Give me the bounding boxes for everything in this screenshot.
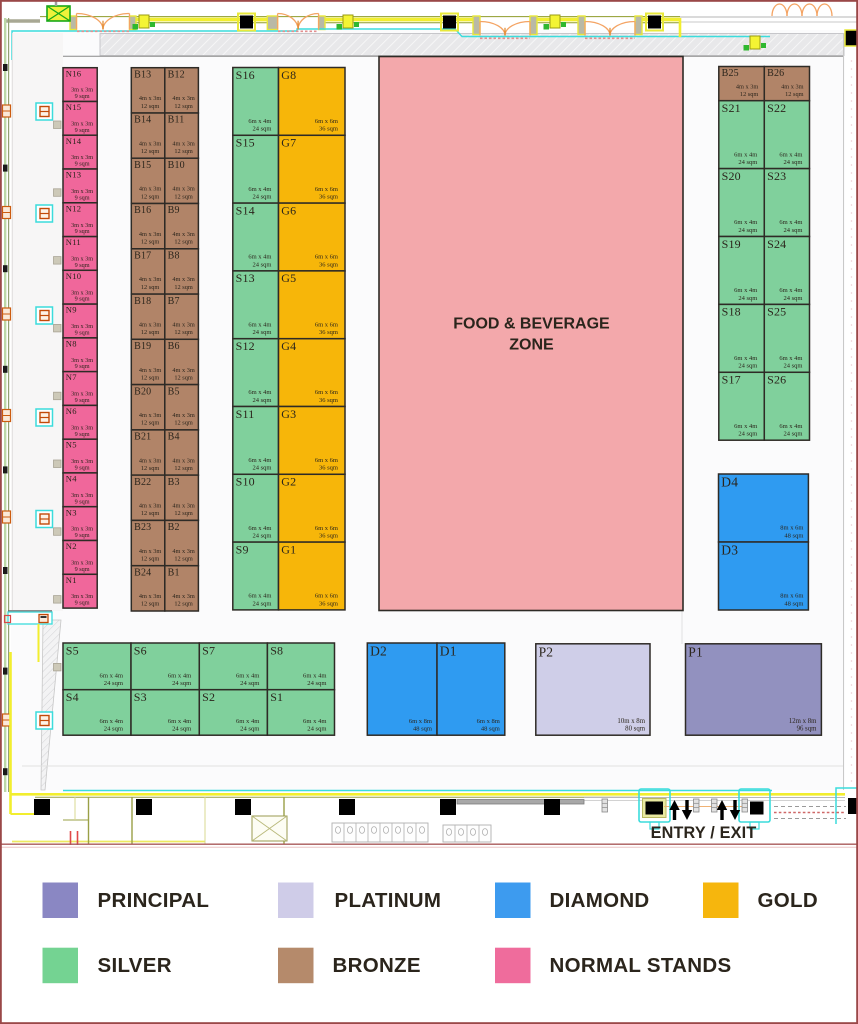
- svg-text:24 sqm: 24 sqm: [784, 159, 803, 166]
- svg-text:24 sqm: 24 sqm: [307, 726, 327, 733]
- svg-text:B21: B21: [134, 432, 151, 443]
- svg-text:6m x 4m: 6m x 4m: [779, 151, 802, 158]
- svg-text:N13: N13: [66, 170, 81, 180]
- svg-text:9 sqm: 9 sqm: [75, 194, 90, 201]
- svg-text:9 sqm: 9 sqm: [75, 161, 90, 168]
- svg-text:S18: S18: [722, 305, 741, 319]
- svg-text:N6: N6: [66, 406, 77, 416]
- svg-text:4m x 3m: 4m x 3m: [172, 412, 194, 419]
- svg-text:4m x 3m: 4m x 3m: [139, 140, 161, 147]
- svg-text:6m x 6m: 6m x 6m: [315, 525, 338, 532]
- svg-text:9 sqm: 9 sqm: [75, 600, 90, 607]
- svg-text:S23: S23: [767, 169, 786, 183]
- svg-text:G6: G6: [281, 203, 296, 217]
- svg-text:24 sqm: 24 sqm: [738, 295, 757, 302]
- svg-text:N7: N7: [66, 372, 77, 382]
- svg-text:S8: S8: [270, 643, 283, 657]
- svg-text:9 sqm: 9 sqm: [75, 465, 90, 472]
- svg-text:24 sqm: 24 sqm: [784, 431, 803, 438]
- svg-text:N2: N2: [66, 541, 77, 551]
- svg-text:24 sqm: 24 sqm: [172, 680, 192, 687]
- svg-text:12 sqm: 12 sqm: [141, 420, 159, 427]
- svg-text:6m x 4m: 6m x 4m: [100, 672, 124, 679]
- svg-text:4m x 3m: 4m x 3m: [172, 548, 194, 555]
- svg-text:4m x 3m: 4m x 3m: [139, 95, 161, 102]
- svg-text:4m x 3m: 4m x 3m: [172, 503, 194, 510]
- svg-text:12 sqm: 12 sqm: [141, 103, 159, 110]
- svg-text:36 sqm: 36 sqm: [319, 261, 338, 268]
- svg-text:S1: S1: [270, 690, 283, 704]
- svg-text:6m x 6m: 6m x 6m: [315, 186, 338, 193]
- svg-text:N1: N1: [66, 575, 77, 585]
- svg-text:24 sqm: 24 sqm: [253, 194, 272, 201]
- svg-text:12 sqm: 12 sqm: [141, 465, 159, 472]
- svg-text:S9: S9: [236, 542, 249, 556]
- svg-text:N10: N10: [66, 271, 81, 281]
- svg-text:4m x 3m: 4m x 3m: [139, 186, 161, 193]
- svg-text:6m x 4m: 6m x 4m: [734, 287, 757, 294]
- svg-text:B10: B10: [168, 160, 185, 171]
- svg-text:6m x 4m: 6m x 4m: [168, 672, 192, 679]
- svg-text:48 sqm: 48 sqm: [784, 532, 803, 539]
- svg-text:9 sqm: 9 sqm: [75, 296, 90, 303]
- svg-text:N5: N5: [66, 440, 77, 450]
- svg-text:S2: S2: [202, 690, 215, 704]
- svg-text:24 sqm: 24 sqm: [253, 126, 272, 133]
- svg-text:9 sqm: 9 sqm: [75, 397, 90, 404]
- svg-text:12m x 8m: 12m x 8m: [789, 718, 817, 725]
- svg-text:B2: B2: [168, 522, 180, 533]
- svg-text:6m x 4m: 6m x 4m: [248, 389, 271, 396]
- svg-text:B20: B20: [134, 386, 151, 397]
- svg-text:S10: S10: [236, 475, 255, 489]
- svg-text:6m x 4m: 6m x 4m: [734, 355, 757, 362]
- svg-text:4m x 3m: 4m x 3m: [172, 231, 194, 238]
- svg-text:NORMAL STANDS: NORMAL STANDS: [550, 954, 732, 977]
- svg-text:N8: N8: [66, 338, 77, 348]
- svg-text:G3: G3: [281, 407, 296, 421]
- svg-text:9 sqm: 9 sqm: [75, 228, 90, 235]
- svg-text:B26: B26: [767, 68, 784, 79]
- svg-text:B15: B15: [134, 160, 151, 171]
- svg-text:36 sqm: 36 sqm: [319, 329, 338, 336]
- svg-text:4m x 3m: 4m x 3m: [172, 457, 194, 464]
- svg-text:12 sqm: 12 sqm: [174, 556, 192, 563]
- svg-text:9 sqm: 9 sqm: [75, 532, 90, 539]
- svg-text:9 sqm: 9 sqm: [75, 498, 90, 505]
- svg-text:S21: S21: [722, 101, 741, 115]
- svg-text:6m x 4m: 6m x 4m: [248, 254, 271, 261]
- svg-text:6m x 4m: 6m x 4m: [168, 718, 192, 725]
- svg-text:6m x 4m: 6m x 4m: [303, 718, 327, 725]
- svg-text:P2: P2: [539, 644, 554, 659]
- svg-text:6m x 6m: 6m x 6m: [315, 593, 338, 600]
- svg-text:PLATINUM: PLATINUM: [335, 889, 442, 912]
- svg-text:B9: B9: [168, 205, 180, 216]
- svg-text:B6: B6: [168, 341, 180, 352]
- svg-text:G4: G4: [281, 339, 296, 353]
- svg-text:80 sqm: 80 sqm: [625, 726, 646, 733]
- svg-text:48 sqm: 48 sqm: [784, 600, 803, 607]
- svg-text:G5: G5: [281, 271, 296, 285]
- svg-text:12 sqm: 12 sqm: [174, 103, 192, 110]
- svg-text:12 sqm: 12 sqm: [174, 148, 192, 155]
- svg-text:24 sqm: 24 sqm: [253, 533, 272, 540]
- svg-text:B12: B12: [168, 69, 185, 80]
- svg-text:4m x 3m: 4m x 3m: [172, 140, 194, 147]
- svg-text:8m x 6m: 8m x 6m: [780, 593, 803, 600]
- svg-text:4m x 3m: 4m x 3m: [139, 457, 161, 464]
- svg-text:36 sqm: 36 sqm: [319, 600, 338, 607]
- svg-text:9 sqm: 9 sqm: [75, 330, 90, 337]
- svg-text:24 sqm: 24 sqm: [104, 680, 124, 687]
- svg-text:D3: D3: [721, 543, 738, 558]
- svg-text:N3: N3: [66, 507, 77, 517]
- svg-text:12 sqm: 12 sqm: [174, 239, 192, 246]
- svg-text:6m x 4m: 6m x 4m: [236, 718, 260, 725]
- svg-text:9 sqm: 9 sqm: [75, 431, 90, 438]
- svg-text:S12: S12: [236, 339, 255, 353]
- svg-text:24 sqm: 24 sqm: [253, 329, 272, 336]
- svg-text:S17: S17: [722, 373, 741, 387]
- svg-text:12 sqm: 12 sqm: [174, 329, 192, 336]
- svg-text:N11: N11: [66, 237, 81, 247]
- svg-text:S7: S7: [202, 643, 215, 657]
- svg-text:G7: G7: [281, 136, 296, 150]
- svg-text:12 sqm: 12 sqm: [141, 601, 159, 608]
- svg-text:12 sqm: 12 sqm: [141, 148, 159, 155]
- svg-text:4m x 3m: 4m x 3m: [172, 186, 194, 193]
- svg-text:12 sqm: 12 sqm: [174, 601, 192, 608]
- svg-text:4m x 3m: 4m x 3m: [172, 593, 194, 600]
- svg-text:B7: B7: [168, 296, 180, 307]
- svg-text:B16: B16: [134, 205, 151, 216]
- svg-text:6m x 4m: 6m x 4m: [779, 423, 802, 430]
- svg-text:12 sqm: 12 sqm: [174, 193, 192, 200]
- svg-text:S16: S16: [236, 68, 255, 82]
- svg-text:96 sqm: 96 sqm: [797, 726, 818, 733]
- svg-text:24 sqm: 24 sqm: [240, 680, 260, 687]
- svg-text:S6: S6: [134, 643, 147, 657]
- svg-text:N4: N4: [66, 474, 77, 484]
- svg-text:24 sqm: 24 sqm: [307, 680, 327, 687]
- svg-text:36 sqm: 36 sqm: [319, 533, 338, 540]
- svg-text:24 sqm: 24 sqm: [253, 397, 272, 404]
- svg-text:B11: B11: [168, 115, 185, 126]
- svg-text:B24: B24: [134, 567, 151, 578]
- svg-text:B17: B17: [134, 251, 151, 262]
- svg-text:ZONE: ZONE: [509, 337, 554, 354]
- svg-text:6m x 6m: 6m x 6m: [315, 457, 338, 464]
- svg-text:48 sqm: 48 sqm: [413, 726, 432, 733]
- svg-text:6m x 6m: 6m x 6m: [315, 321, 338, 328]
- svg-text:12 sqm: 12 sqm: [740, 91, 758, 98]
- svg-text:6m x 4m: 6m x 4m: [248, 457, 271, 464]
- svg-text:24 sqm: 24 sqm: [253, 600, 272, 607]
- svg-text:24 sqm: 24 sqm: [240, 726, 260, 733]
- svg-text:12 sqm: 12 sqm: [141, 329, 159, 336]
- svg-text:4m x 3m: 4m x 3m: [172, 322, 194, 329]
- svg-text:6m x 4m: 6m x 4m: [248, 525, 271, 532]
- svg-text:4m x 3m: 4m x 3m: [781, 83, 803, 90]
- svg-text:B1: B1: [168, 567, 180, 578]
- svg-text:S13: S13: [236, 271, 255, 285]
- svg-text:S19: S19: [722, 237, 741, 251]
- svg-text:24 sqm: 24 sqm: [253, 261, 272, 268]
- svg-text:4m x 3m: 4m x 3m: [139, 503, 161, 510]
- svg-text:12 sqm: 12 sqm: [174, 374, 192, 381]
- svg-text:S24: S24: [767, 237, 786, 251]
- svg-text:6m x 4m: 6m x 4m: [303, 672, 327, 679]
- svg-text:6m x 4m: 6m x 4m: [734, 219, 757, 226]
- svg-text:BRONZE: BRONZE: [333, 954, 421, 977]
- svg-text:8m x 6m: 8m x 6m: [780, 525, 803, 532]
- svg-text:N14: N14: [66, 136, 82, 146]
- svg-text:6m x 6m: 6m x 6m: [315, 118, 338, 125]
- svg-text:FOOD & BEVERAGE: FOOD & BEVERAGE: [453, 316, 610, 333]
- svg-text:S3: S3: [134, 690, 147, 704]
- svg-text:4m x 3m: 4m x 3m: [139, 593, 161, 600]
- svg-text:S25: S25: [767, 305, 786, 319]
- svg-text:G2: G2: [281, 475, 296, 489]
- svg-text:B22: B22: [134, 477, 151, 488]
- svg-text:D1: D1: [440, 644, 457, 659]
- svg-text:24 sqm: 24 sqm: [784, 227, 803, 234]
- svg-text:B8: B8: [168, 251, 180, 262]
- svg-text:B25: B25: [722, 68, 739, 79]
- svg-text:24 sqm: 24 sqm: [738, 159, 757, 166]
- svg-text:N12: N12: [66, 203, 81, 213]
- svg-text:4m x 3m: 4m x 3m: [736, 83, 758, 90]
- svg-text:6m x 4m: 6m x 4m: [734, 151, 757, 158]
- svg-text:N9: N9: [66, 305, 77, 315]
- svg-text:12 sqm: 12 sqm: [141, 239, 159, 246]
- svg-text:ENTRY / EXIT: ENTRY / EXIT: [651, 824, 757, 842]
- svg-text:12 sqm: 12 sqm: [174, 420, 192, 427]
- svg-text:24 sqm: 24 sqm: [784, 363, 803, 370]
- svg-text:6m x 4m: 6m x 4m: [100, 718, 124, 725]
- svg-text:6m x 4m: 6m x 4m: [779, 355, 802, 362]
- svg-text:12 sqm: 12 sqm: [141, 284, 159, 291]
- svg-text:N15: N15: [66, 102, 81, 112]
- svg-text:4m x 3m: 4m x 3m: [139, 548, 161, 555]
- svg-text:B18: B18: [134, 296, 151, 307]
- svg-text:24 sqm: 24 sqm: [172, 726, 192, 733]
- svg-text:6m x 4m: 6m x 4m: [248, 118, 271, 125]
- svg-text:10m x 8m: 10m x 8m: [617, 718, 645, 725]
- svg-text:4m x 3m: 4m x 3m: [139, 231, 161, 238]
- svg-text:6m x 8m: 6m x 8m: [477, 718, 500, 725]
- svg-text:36 sqm: 36 sqm: [319, 397, 338, 404]
- svg-text:S5: S5: [66, 643, 79, 657]
- svg-text:B14: B14: [134, 115, 151, 126]
- svg-text:S26: S26: [767, 373, 786, 387]
- svg-text:4m x 3m: 4m x 3m: [139, 412, 161, 419]
- svg-text:12 sqm: 12 sqm: [141, 374, 159, 381]
- svg-text:12 sqm: 12 sqm: [174, 465, 192, 472]
- svg-text:12 sqm: 12 sqm: [141, 510, 159, 517]
- svg-text:4m x 3m: 4m x 3m: [172, 95, 194, 102]
- svg-text:6m x 6m: 6m x 6m: [315, 254, 338, 261]
- svg-text:S22: S22: [767, 101, 786, 115]
- svg-text:36 sqm: 36 sqm: [319, 126, 338, 133]
- svg-text:D4: D4: [721, 475, 738, 490]
- svg-text:24 sqm: 24 sqm: [784, 295, 803, 302]
- svg-text:24 sqm: 24 sqm: [738, 363, 757, 370]
- svg-text:B4: B4: [168, 432, 180, 443]
- svg-text:4m x 3m: 4m x 3m: [139, 276, 161, 283]
- svg-text:9 sqm: 9 sqm: [75, 93, 90, 100]
- svg-text:12 sqm: 12 sqm: [174, 284, 192, 291]
- svg-text:S4: S4: [66, 690, 79, 704]
- svg-text:4m x 3m: 4m x 3m: [172, 276, 194, 283]
- svg-text:P1: P1: [688, 644, 703, 659]
- svg-text:B13: B13: [134, 69, 151, 80]
- svg-text:9 sqm: 9 sqm: [75, 566, 90, 573]
- svg-text:B3: B3: [168, 477, 180, 488]
- svg-text:24 sqm: 24 sqm: [738, 431, 757, 438]
- svg-text:S15: S15: [236, 136, 255, 150]
- svg-text:6m x 4m: 6m x 4m: [248, 321, 271, 328]
- svg-text:6m x 4m: 6m x 4m: [779, 287, 802, 294]
- svg-text:6m x 4m: 6m x 4m: [248, 593, 271, 600]
- svg-text:S14: S14: [236, 203, 255, 217]
- svg-text:9 sqm: 9 sqm: [75, 262, 90, 269]
- svg-text:48 sqm: 48 sqm: [481, 726, 500, 733]
- svg-text:24 sqm: 24 sqm: [253, 465, 272, 472]
- svg-text:SILVER: SILVER: [98, 954, 172, 977]
- svg-text:4m x 3m: 4m x 3m: [172, 367, 194, 374]
- svg-text:24 sqm: 24 sqm: [738, 227, 757, 234]
- svg-text:12 sqm: 12 sqm: [141, 193, 159, 200]
- svg-text:B5: B5: [168, 386, 180, 397]
- svg-text:6m x 6m: 6m x 6m: [315, 389, 338, 396]
- svg-text:24 sqm: 24 sqm: [104, 726, 124, 733]
- svg-text:4m x 3m: 4m x 3m: [139, 322, 161, 329]
- svg-text:DIAMOND: DIAMOND: [550, 889, 650, 912]
- svg-text:B23: B23: [134, 522, 151, 533]
- svg-text:6m x 4m: 6m x 4m: [779, 219, 802, 226]
- svg-text:B19: B19: [134, 341, 151, 352]
- svg-text:PRINCIPAL: PRINCIPAL: [98, 889, 210, 912]
- svg-text:D2: D2: [370, 644, 387, 659]
- svg-text:6m x 4m: 6m x 4m: [236, 672, 260, 679]
- svg-text:S11: S11: [236, 407, 255, 421]
- svg-text:6m x 4m: 6m x 4m: [734, 423, 757, 430]
- svg-text:G8: G8: [281, 68, 296, 82]
- svg-text:9 sqm: 9 sqm: [75, 127, 90, 134]
- svg-text:9 sqm: 9 sqm: [75, 363, 90, 370]
- svg-text:GOLD: GOLD: [758, 889, 818, 912]
- svg-text:12 sqm: 12 sqm: [785, 91, 803, 98]
- svg-text:S20: S20: [722, 169, 741, 183]
- svg-text:36 sqm: 36 sqm: [319, 465, 338, 472]
- svg-text:12 sqm: 12 sqm: [174, 510, 192, 517]
- svg-text:12 sqm: 12 sqm: [141, 556, 159, 563]
- svg-text:36 sqm: 36 sqm: [319, 194, 338, 201]
- svg-text:4m x 3m: 4m x 3m: [139, 367, 161, 374]
- svg-text:6m x 8m: 6m x 8m: [409, 718, 432, 725]
- svg-text:N16: N16: [66, 68, 82, 78]
- svg-text:G1: G1: [281, 542, 296, 556]
- svg-text:6m x 4m: 6m x 4m: [248, 186, 271, 193]
